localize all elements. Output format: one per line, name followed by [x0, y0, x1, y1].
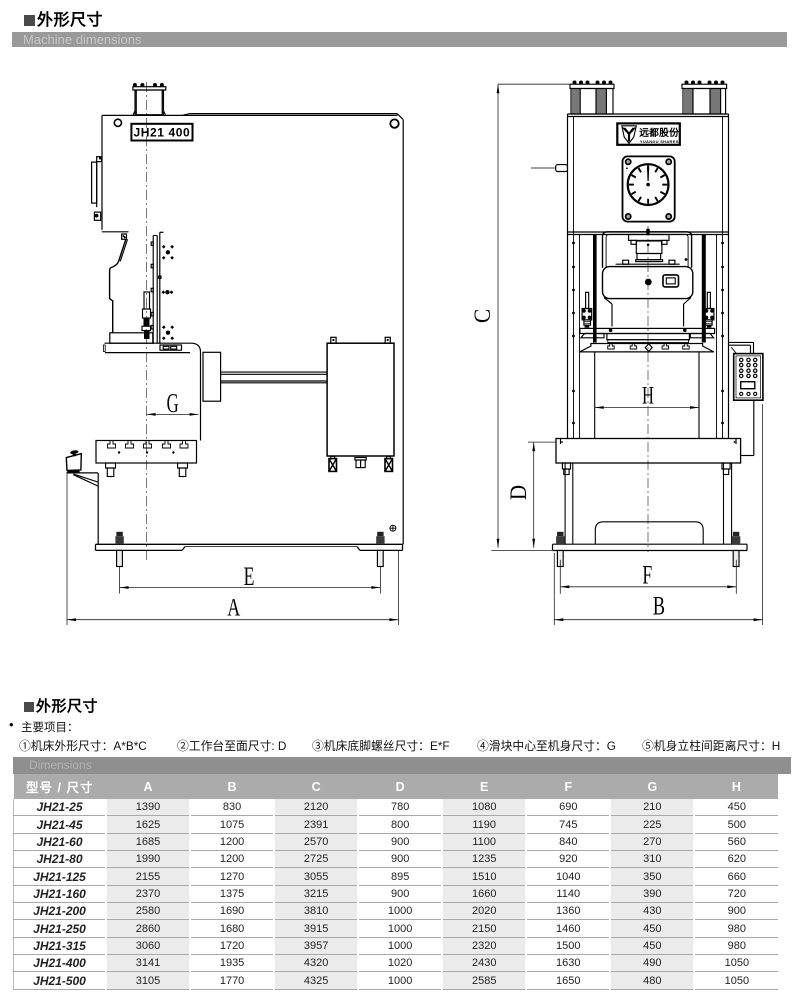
svg-text:E: E: [244, 562, 255, 591]
svg-text:YUANDU SHARES: YUANDU SHARES: [640, 139, 679, 144]
svg-text:H: H: [642, 381, 654, 409]
svg-text:远都股份: 远都股份: [639, 126, 679, 139]
svg-text:D: D: [505, 485, 531, 500]
svg-text:A: A: [227, 594, 240, 622]
svg-text:G: G: [167, 388, 179, 418]
svg-text:C: C: [469, 309, 495, 323]
svg-text:JH21 400: JH21 400: [133, 126, 190, 140]
svg-text:B: B: [653, 591, 665, 620]
svg-text:F: F: [642, 560, 652, 589]
